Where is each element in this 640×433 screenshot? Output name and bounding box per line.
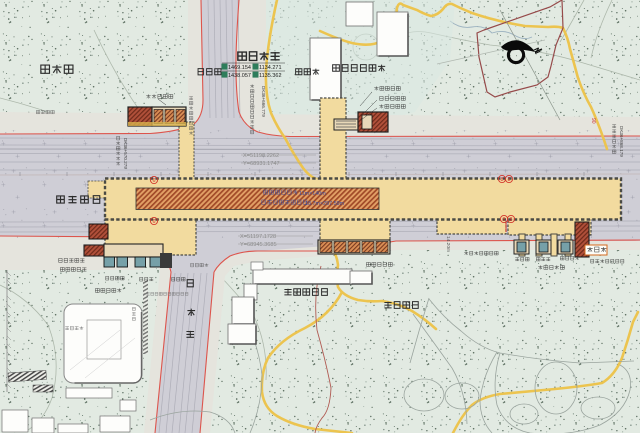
- svg-text:1469.154: 1469.154: [228, 65, 251, 71]
- svg-text:18.7m×297.59m: 18.7m×297.59m: [305, 201, 345, 207]
- svg-text:14.20m: 14.20m: [445, 236, 451, 252]
- svg-text:8: 8: [503, 217, 506, 223]
- svg-text:6: 6: [153, 219, 156, 225]
- svg-text:DK36+570.279: DK36+570.279: [123, 138, 128, 169]
- svg-text:: 11m×140m: : 11m×140m: [296, 191, 326, 197]
- svg-text:X=51197.1728: X=51197.1728: [240, 234, 276, 240]
- svg-text:DK36+868.179: DK36+868.179: [619, 126, 624, 157]
- svg-text:DK36+666.779: DK36+666.779: [261, 86, 266, 117]
- svg-text:Y=68931.1747: Y=68931.1747: [243, 161, 280, 167]
- svg-text:6: 6: [153, 178, 156, 184]
- svg-text:1135.362: 1135.362: [259, 73, 282, 79]
- svg-text:Y=68945.3685: Y=68945.3685: [240, 242, 277, 248]
- svg-text:1438.057: 1438.057: [228, 73, 251, 79]
- svg-text:90: 90: [590, 118, 596, 124]
- svg-text:8: 8: [510, 217, 513, 223]
- svg-text:8: 8: [501, 177, 504, 183]
- svg-text:X=51198.2262: X=51198.2262: [243, 153, 279, 159]
- svg-text:8: 8: [508, 177, 511, 183]
- svg-text:1134.271: 1134.271: [259, 65, 282, 71]
